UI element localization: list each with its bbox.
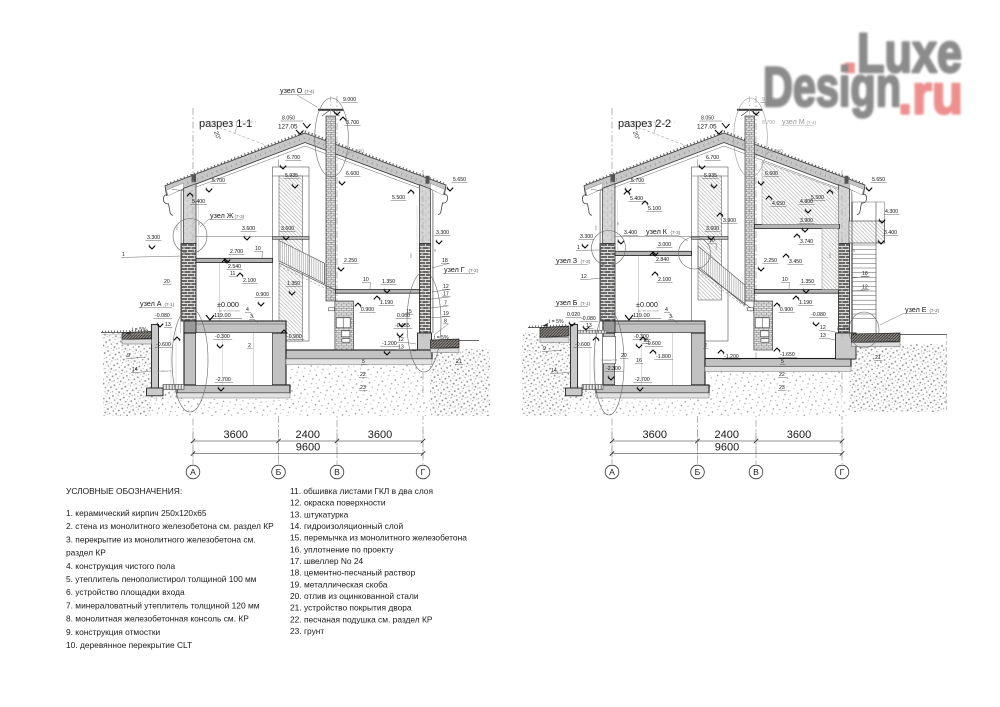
svg-text:узел Г: узел Г: [444, 265, 465, 274]
svg-text:8.700: 8.700: [762, 120, 775, 126]
svg-text:(7-3): (7-3): [580, 259, 590, 264]
svg-text:7. минераловатный утеплитель т: 7. минераловатный утеплитель толщиной 12…: [66, 600, 260, 610]
svg-text:60: 60: [616, 221, 620, 225]
svg-text:18. цементно-песчаный раствор: 18. цементно-песчаный раствор: [290, 568, 416, 578]
svg-text:16. уплотнение по проекту: 16. уплотнение по проекту: [290, 544, 394, 554]
svg-text:приямок П-1: приямок П-1: [157, 369, 174, 373]
svg-text:21. устройство покрытия двора: 21. устройство покрытия двора: [290, 603, 412, 613]
svg-text:8.050: 8.050: [701, 116, 714, 122]
svg-text:(7-3): (7-3): [234, 214, 244, 219]
svg-text:9600: 9600: [296, 442, 320, 454]
svg-text:Г: Г: [421, 467, 426, 477]
svg-text:6. устройство площадки входа: 6. устройство площадки входа: [66, 587, 185, 597]
svg-text:узел Б: узел Б: [556, 298, 578, 307]
svg-text:(7-1): (7-1): [580, 301, 590, 306]
svg-text:5. утеплитель пенополистирол т: 5. утеплитель пенополистирол толщиной 10…: [66, 574, 257, 584]
svg-text:В: В: [753, 467, 759, 477]
svg-text:60: 60: [433, 248, 437, 252]
svg-text:150: 150: [409, 253, 413, 258]
svg-text:3600: 3600: [643, 429, 667, 441]
svg-text:17. швеллер No 24: 17. швеллер No 24: [290, 556, 364, 566]
svg-text:раздел КР: раздел КР: [66, 548, 106, 558]
svg-text:3. перекрытие из монолитного ж: 3. перекрытие из монолитного железобетон…: [66, 534, 256, 544]
svg-text:А: А: [609, 467, 615, 477]
svg-text:В: В: [334, 467, 340, 477]
svg-text:3600: 3600: [787, 429, 811, 441]
svg-text:14. гидроизоляционный слой: 14. гидроизоляционный слой: [290, 521, 403, 531]
svg-text:15.900: 15.900: [348, 149, 364, 155]
svg-text:9600: 9600: [715, 442, 739, 454]
svg-text:А: А: [190, 467, 196, 477]
svg-text:2400: 2400: [715, 429, 739, 441]
svg-text:узел Е: узел Е: [905, 305, 927, 314]
svg-text:19. металлическая скоба: 19. металлическая скоба: [290, 579, 388, 589]
svg-text:.ru: .ru: [898, 63, 963, 126]
svg-text:127.05: 127.05: [697, 124, 717, 131]
svg-text:Г: Г: [840, 467, 845, 477]
svg-text:3600: 3600: [224, 429, 248, 441]
svg-text:1. керамический кирпич 250х120: 1. керамический кирпич 250х120х65: [66, 508, 207, 518]
svg-text:11. обшивка листами ГКЛ в два: 11. обшивка листами ГКЛ в два слоя: [290, 486, 433, 496]
svg-text:Б: Б: [695, 467, 701, 477]
svg-text:8. монолитная железобетонная к: 8. монолитная железобетонная консоль см.…: [66, 614, 249, 624]
svg-text:до чистого пола: до чистого пола: [219, 309, 240, 313]
svg-text:(7-2): (7-2): [929, 308, 939, 313]
svg-text:22. песчаная подушка см. разде: 22. песчаная подушка см. раздел КР: [290, 614, 433, 624]
svg-text:2400: 2400: [296, 429, 320, 441]
svg-text:УСЛОВНЫЕ ОБОЗНАЧЕНИЯ:: УСЛОВНЫЕ ОБОЗНАЧЕНИЯ:: [66, 486, 182, 496]
svg-text:(7-4): (7-4): [806, 120, 816, 125]
svg-text:2. стена из монолитного железо: 2. стена из монолитного железобетона см.…: [66, 521, 274, 531]
svg-text:i = 5%: i = 5%: [549, 319, 564, 325]
svg-text:3600: 3600: [368, 429, 392, 441]
svg-text:127.05: 127.05: [278, 124, 298, 131]
svg-text:9. конструкция отмостки: 9. конструкция отмостки: [66, 627, 161, 637]
svg-text:15. перемычка из монолитного ж: 15. перемычка из монолитного железобетон…: [290, 533, 467, 543]
svg-text:узел Ж: узел Ж: [210, 211, 234, 220]
svg-text:60: 60: [852, 248, 856, 252]
svg-text:(7-2): (7-2): [468, 268, 478, 273]
svg-text:i = 5%: i = 5%: [132, 327, 147, 333]
svg-text:Design: Design: [763, 55, 901, 118]
svg-text:i = 5%: i = 5%: [434, 335, 449, 341]
svg-text:(7-1): (7-1): [164, 302, 174, 307]
svg-text:150: 150: [828, 253, 832, 258]
svg-text:4. конструкция чистого пола: 4. конструкция чистого пола: [66, 561, 176, 571]
svg-text:разрез 1-1: разрез 1-1: [199, 118, 252, 130]
svg-text:23. грунт: 23. грунт: [290, 626, 324, 636]
svg-text:150: 150: [175, 225, 179, 230]
svg-text:8.050: 8.050: [282, 116, 295, 122]
svg-text:12. окраска поверхности: 12. окраска поверхности: [290, 498, 386, 508]
svg-text:узел О: узел О: [280, 86, 303, 95]
svg-text:20. отлив из оцинкованной стал: 20. отлив из оцинкованной стали: [290, 591, 419, 601]
svg-text:разрез 2-2: разрез 2-2: [618, 118, 671, 130]
svg-text:(7-3): (7-3): [670, 230, 680, 235]
svg-text:150: 150: [594, 225, 598, 230]
svg-text:(7-4): (7-4): [304, 89, 314, 94]
svg-text:до чистого пола: до чистого пола: [638, 309, 659, 313]
svg-text:13. штукатурка: 13. штукатурка: [290, 509, 349, 519]
svg-text:узел А: узел А: [140, 299, 162, 308]
svg-text:узел К: узел К: [646, 227, 668, 236]
svg-text:Б: Б: [276, 467, 282, 477]
svg-text:16.900: 16.900: [767, 149, 783, 155]
svg-text:приямок П-2: приямок П-2: [601, 358, 618, 362]
svg-text:i = 5%: i = 5%: [837, 326, 850, 331]
svg-text:10. деревянное перекрытие CLT: 10. деревянное перекрытие CLT: [66, 640, 192, 650]
svg-text:узел М: узел М: [782, 117, 805, 126]
svg-text:узел З: узел З: [556, 256, 577, 265]
